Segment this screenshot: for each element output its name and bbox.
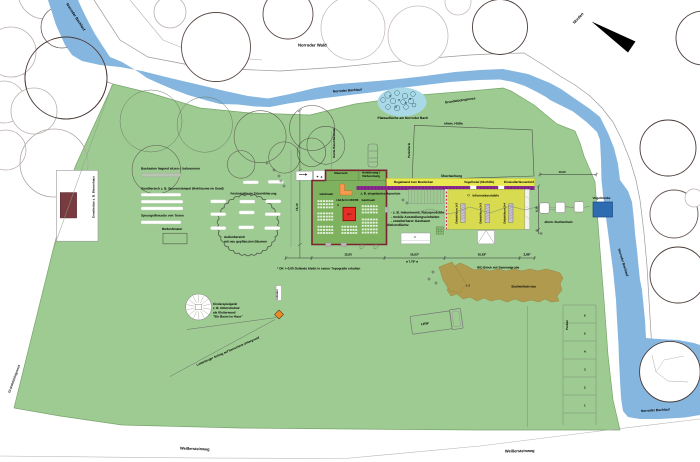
svg-text:Gastraum: Gastraum [362,198,376,202]
svg-text:16,63*: 16,63* [478,252,488,256]
svg-text:Vorbereitung: Vorbereitung [362,174,380,178]
svg-text:Norroder Wald: Norroder Wald [298,43,327,48]
svg-text:Kante Baumbestand: Kante Baumbestand [332,128,336,158]
svg-text:Informationstafeln: Informationstafeln [473,193,500,197]
svg-text:Gastraum: Gastraum [320,192,334,196]
svg-text:Didaktikum 1+2: Didaktikum 1+2 [454,202,458,223]
svg-text:Buchenhain neu: Buchenhain neu [512,284,537,288]
svg-text:Vogeltränke: Vogeltränke [593,196,611,200]
svg-text:Didaktikum 2+3: Didaktikum 2+3 [479,202,483,223]
svg-text:z. B. eingebautes Aquarium: z. B. eingebautes Aquarium [361,191,401,195]
svg-text:1 2: 1 2 [466,284,470,288]
svg-text:ehem. Buchenhain: ehem. Buchenhain [545,220,573,224]
svg-text:mit neu gepflanzten Bäumen: mit neu gepflanzten Bäumen [224,239,267,243]
svg-text:Infotafel: Infotafel [276,289,279,299]
svg-text:ø 7,78* ø: ø 7,78* ø [406,260,418,264]
svg-text:ehem. Hütte: ehem. Hütte [444,122,463,126]
svg-text:WC-Block mit Sammelgrube: WC-Block mit Sammelgrube [477,265,520,269]
svg-text:16,63*: 16,63* [410,252,420,256]
svg-text:Baukasten liegend sitzen r. ba: Baukasten liegend sitzen r. balancieren [141,167,200,171]
svg-text:Sprungsilhouette von Tieren: Sprungsilhouette von Tieren [141,214,184,218]
svg-text:Regalwand zum Bestücken: Regalwand zum Bestücken [394,180,433,184]
svg-text:Festinstallierte Sitzmöblierun: Festinstallierte Sitzmöblierung [231,192,277,196]
svg-text:Bodenfenster: Bodenfenster [162,227,183,231]
svg-text:Parken: Parken [565,320,569,330]
svg-text:Vogelhotel (Nisthilfe): Vogelhotel (Nisthilfe) [464,180,494,184]
svg-text:Aktionsfläche: Aktionsfläche [387,223,409,227]
svg-text:Sandbereich z. B. Spurenstempe: Sandbereich z. B. Spurenstempel (Hohlräu… [141,187,224,191]
svg-text:Überdachung: Überdachung [441,174,462,178]
svg-text:15,10: 15,10 [295,203,299,211]
svg-text:+32,5cm OKFFB: +32,5cm OKFFB [336,198,359,202]
svg-text:2,88*: 2,88* [523,252,531,256]
svg-text:* OK +-0,00 Gelände bleibt in: * OK +-0,00 Gelände bleibt in seiner Top… [277,266,360,270]
svg-text:4,10: 4,10 [534,206,538,212]
svg-text:Einsiedlerbienenfeld: Einsiedlerbienenfeld [504,180,534,184]
svg-text:Weißersteinweg: Weißersteinweg [505,448,535,454]
svg-text:Erweiterbar z. B. Bienenhaus: Erweiterbar z. B. Bienenhaus [92,176,96,218]
svg-text:Didaktikum 3+4: Didaktikum 3+4 [502,202,506,223]
svg-text:Parzellerie: Parzellerie [407,142,411,158]
svg-text:12,00: 12,00 [344,252,352,256]
svg-text:Stauraum: Stauraum [334,171,348,175]
svg-text:10,00: 10,00 [558,170,566,174]
svg-text:Q=4: Q=4 [347,213,352,216]
svg-text:Platzaufläche am Norroder Bach: Platzaufläche am Norroder Bach [378,116,429,120]
svg-text:"Ein Baum im Haus": "Ein Baum im Haus" [213,315,243,319]
svg-text:Weißersteinweg: Weißersteinweg [180,446,210,452]
